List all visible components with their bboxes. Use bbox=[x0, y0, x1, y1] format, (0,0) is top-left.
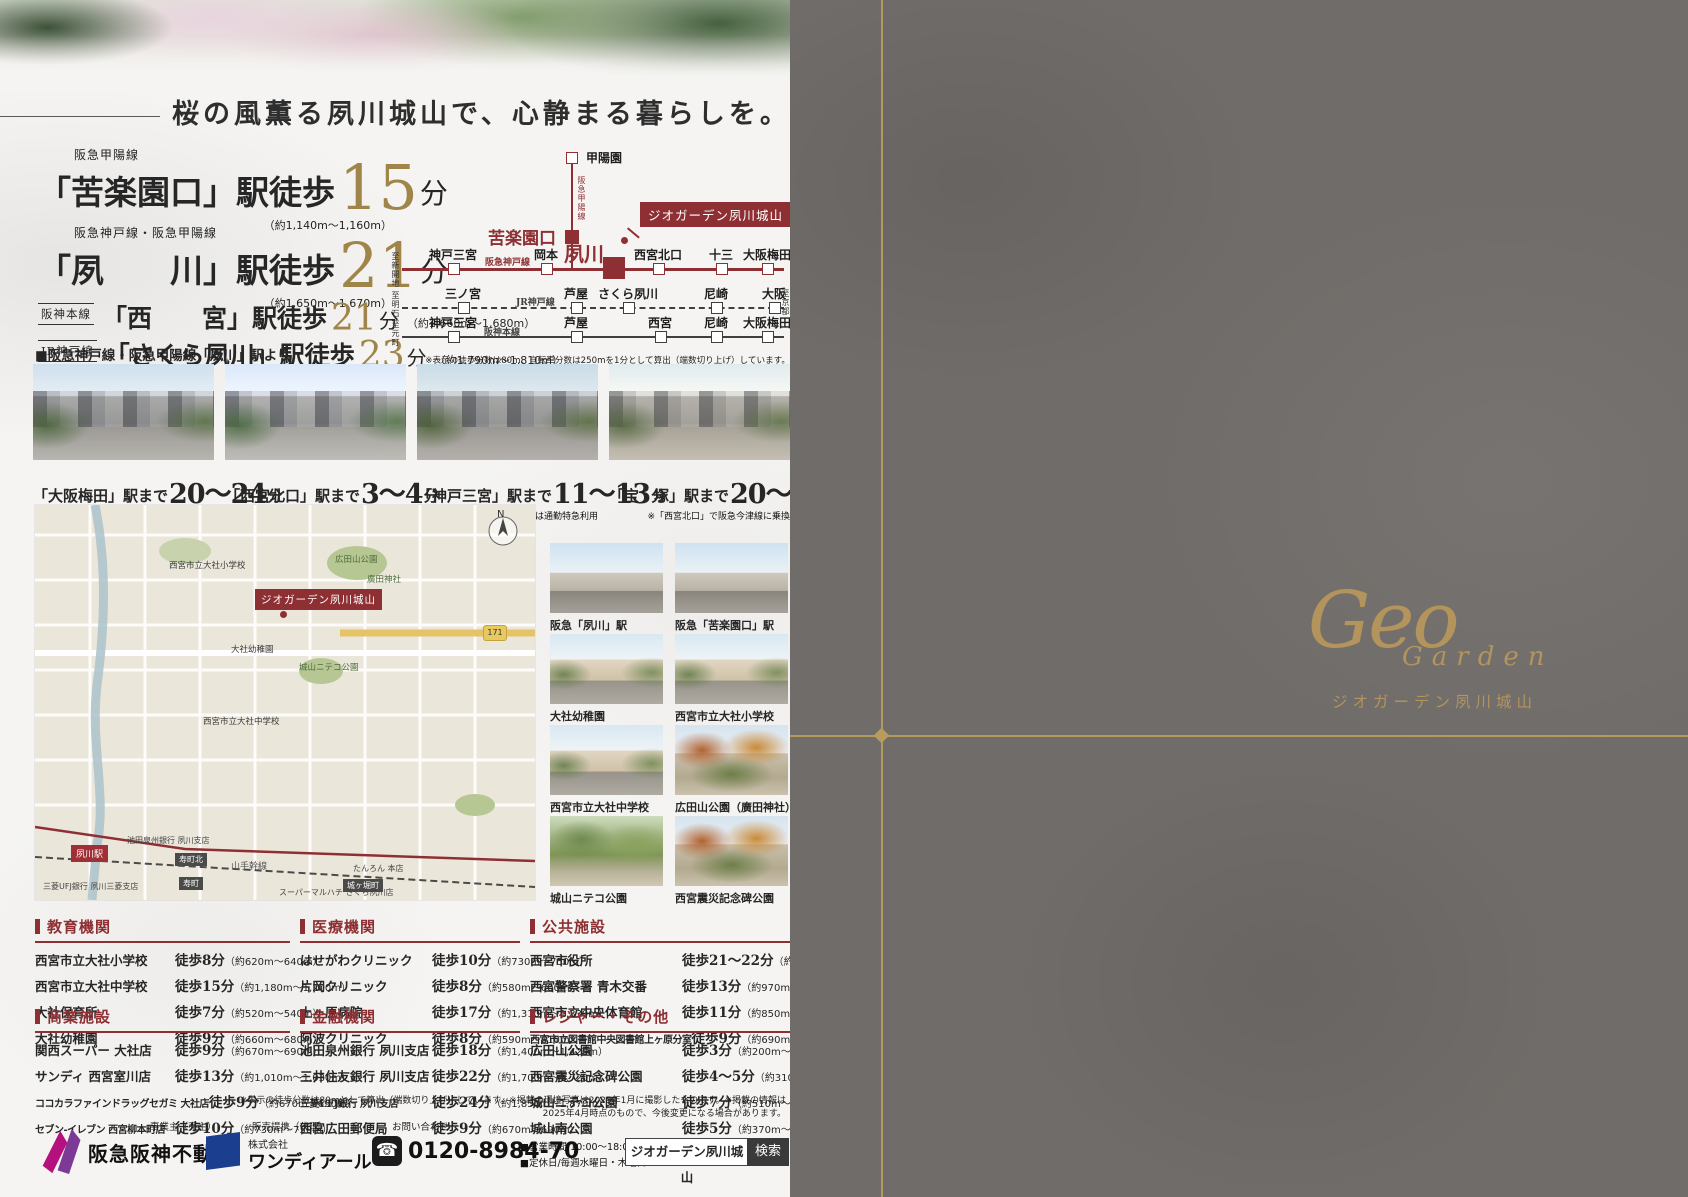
map-label-tiny: たんろん 本店 bbox=[353, 863, 404, 874]
facility-walk-time: 徒歩8分 bbox=[175, 949, 225, 969]
gold-vertical-rule bbox=[881, 0, 883, 1197]
station-name: 「苦楽園口」駅徒歩 bbox=[38, 166, 335, 214]
map-label-park: 広田山公園 bbox=[335, 553, 378, 565]
facility-photo-caption: 広田山公園（廣田神社） bbox=[675, 799, 788, 815]
facility-row: サンディ 西宮室川店徒歩13分（約1,010m〜1,030m） bbox=[35, 1065, 290, 1085]
station-label: 十三 bbox=[709, 246, 733, 263]
one-dr-logo-mark bbox=[206, 1132, 240, 1170]
property-location-dot bbox=[280, 611, 287, 618]
station-marker bbox=[541, 263, 553, 275]
cityscape-photo bbox=[33, 364, 214, 460]
facility-row: 三井住友銀行 夙川支店徒歩22分（約1,700m〜1,720m） bbox=[300, 1065, 520, 1085]
map-label-darkbox: 寿町 bbox=[179, 877, 203, 890]
photo-caption: 「神戸三宮」駅まで11〜13分 bbox=[417, 484, 598, 506]
facility-photo-item: 西宮市立大社小学校 bbox=[675, 634, 788, 724]
facility-photo bbox=[550, 634, 663, 704]
station-label: 芦屋 bbox=[564, 314, 588, 331]
rail-line-name: 阪神本線 bbox=[484, 325, 520, 338]
station-label: 甲陽園 bbox=[586, 149, 622, 166]
line-destination-left: 至新開地 bbox=[390, 252, 401, 288]
business-hours: ■営業時間/10:00〜18:00 bbox=[520, 1139, 634, 1153]
header-bar bbox=[35, 919, 40, 934]
station-marker bbox=[623, 302, 635, 314]
map-label-tiny2: 西宮市立大社中学校 bbox=[203, 715, 280, 727]
developer-label: 事業主（売主） bbox=[150, 1119, 217, 1133]
cityscape-photo bbox=[225, 364, 406, 460]
station-label: 西宮北口 bbox=[634, 246, 682, 263]
facility-photo-item: 広田山公園（廣田神社） bbox=[675, 725, 788, 815]
map-label-plain: 山手幹線 bbox=[231, 859, 267, 872]
flag-pointer bbox=[627, 227, 640, 238]
back-cover: Geo Garden ジオガーデン夙川城山 bbox=[790, 0, 1688, 1197]
photo-caption: 「宝 塚」駅まで20〜26分 bbox=[609, 484, 790, 506]
phone-icon: ☎ bbox=[372, 1136, 402, 1166]
station-marker bbox=[458, 302, 470, 314]
line-destination-left: 至元町 bbox=[390, 320, 401, 347]
facility-row: 西宮市立大社中学校徒歩15分（約1,180m〜1,200m） bbox=[35, 975, 290, 995]
facility-photo-item: 大社幼稚園 bbox=[550, 634, 663, 724]
rail-route-diagram: 至新開地阪急神戸線神戸三宮岡本西宮北口十三大阪梅田至明石至京都JR神戸線三ノ宮芦… bbox=[388, 140, 790, 368]
facility-table-title: 教育機関 bbox=[47, 916, 111, 937]
station-marker bbox=[769, 302, 781, 314]
facility-photo-item: 西宮震災記念碑公園 bbox=[675, 816, 788, 906]
station-name: 「夙 川」駅徒歩 bbox=[38, 244, 335, 292]
station-access-main: 「苦楽園口」駅徒歩15分 bbox=[38, 163, 392, 214]
facility-walk-time: 徒歩21〜22分 bbox=[682, 949, 774, 969]
station-photo-item: 「西宮北口」駅まで3〜4分 bbox=[225, 364, 406, 522]
facility-photo bbox=[550, 725, 663, 795]
station-name: 「西 宮」駅徒歩 bbox=[102, 299, 327, 335]
facility-walk-time: 徒歩13分 bbox=[175, 1065, 234, 1085]
facility-row: 広田山公園徒歩3分（約200m〜220m） bbox=[530, 1039, 790, 1059]
station-label: 尼崎 bbox=[704, 285, 728, 302]
rail-line-name: 阪急神戸線 bbox=[485, 255, 530, 268]
facility-table-title: 医療機関 bbox=[312, 916, 376, 937]
facility-name: 城山南公園 bbox=[530, 1118, 682, 1137]
station-photo-item: 「神戸三宮」駅まで11〜13分※特急または通勤特急利用 bbox=[417, 364, 598, 522]
search-keyword-box: ジオガーデン夙川城山 bbox=[625, 1138, 749, 1166]
contact-label: お問い合わせ bbox=[392, 1119, 449, 1133]
station-label: 神戸三宮 bbox=[429, 314, 477, 331]
facility-walk-time: 徒歩10分 bbox=[432, 949, 491, 969]
caption-note: ※「西宮北口」で阪急今津線に乗換 bbox=[609, 509, 790, 522]
facility-name: サンディ 西宮室川店 bbox=[35, 1066, 175, 1085]
facility-table-title: 公共施設 bbox=[542, 916, 606, 937]
facility-walk-time: 徒歩8分 bbox=[432, 975, 482, 995]
property-flag: ジオガーデン夙川城山 bbox=[640, 202, 791, 227]
map-label-tiny2: 西宮市立大社小学校 bbox=[169, 559, 246, 571]
logo-garden-text: Garden bbox=[1402, 642, 1553, 672]
area-map: N 171 ジオガーデン夙川城山夙川駅寿町北寿町城ヶ堀町山手幹線池田泉州銀行 夙… bbox=[35, 505, 535, 900]
header-bar bbox=[530, 1009, 535, 1024]
facility-photo-caption: 西宮市立大社中学校 bbox=[550, 799, 663, 815]
facility-photo bbox=[550, 816, 663, 886]
hankyu-hanshin-logo-mark bbox=[40, 1128, 84, 1174]
station-marker bbox=[711, 331, 723, 343]
facility-name: 池田泉州銀行 夙川支店 bbox=[300, 1040, 432, 1059]
facility-table-header: 教育機関 bbox=[35, 916, 290, 943]
hub-station-marker bbox=[603, 257, 625, 279]
facility-name: はせがわクリニック bbox=[300, 950, 432, 969]
station-photo-item: 「大阪梅田」駅まで20〜24分※特急または通勤特急利用 bbox=[33, 364, 214, 522]
facility-table-header: 公共施設 bbox=[530, 916, 790, 943]
station-label: さくら夙川 bbox=[598, 285, 658, 302]
map-label-tiny2: 大社幼稚園 bbox=[231, 643, 274, 655]
station-label: 神戸三宮 bbox=[429, 246, 477, 263]
facility-walk-time: 徒歩13分 bbox=[682, 975, 741, 995]
station-marker bbox=[655, 331, 667, 343]
line-destination-left: 至明石 bbox=[390, 291, 401, 318]
branch-line-name: 阪急甲陽線 bbox=[576, 176, 587, 221]
rail-line-label: 阪神本線 bbox=[38, 303, 94, 325]
facility-photo bbox=[675, 634, 788, 704]
facility-photo-item: 城山ニテコ公園 bbox=[550, 816, 663, 906]
map-label-flag: ジオガーデン夙川城山 bbox=[255, 589, 382, 610]
facility-row: 西宮震災記念碑公園徒歩4〜5分（約310m〜330m） bbox=[530, 1065, 790, 1085]
station-marker bbox=[566, 152, 578, 164]
station-label: 尼崎 bbox=[704, 314, 728, 331]
facility-name: 西宮震災記念碑公園 bbox=[530, 1066, 682, 1085]
facility-photo-item: 阪急「夙川」駅 bbox=[550, 543, 663, 633]
gold-diamond bbox=[874, 728, 890, 744]
facility-photo-caption: 西宮震災記念碑公園 bbox=[675, 890, 788, 906]
map-label-tiny: 三菱UFJ銀行 夙川三菱支店 bbox=[43, 881, 138, 892]
facility-name: 西宮市立大社小学校 bbox=[35, 950, 175, 969]
station-marker bbox=[716, 263, 728, 275]
station-label: 大阪梅田 bbox=[743, 246, 791, 263]
header-bar bbox=[530, 919, 535, 934]
agency-label: 販売提携（代理） bbox=[252, 1119, 328, 1133]
facility-name: 西宮市立大社中学校 bbox=[35, 976, 175, 995]
facility-photo-caption: 阪急「苦楽園口」駅 bbox=[675, 617, 788, 633]
gold-horizontal-rule bbox=[790, 735, 1688, 737]
map-base bbox=[35, 505, 535, 900]
station-marker bbox=[711, 302, 723, 314]
map-label-park: 廣田神社 bbox=[367, 573, 401, 585]
facility-row: 片岡クリニック徒歩8分（約580m〜600m） bbox=[300, 975, 520, 995]
caption-minutes: 3〜4 bbox=[361, 484, 423, 506]
facility-row: はせがわクリニック徒歩10分（約730m〜750m） bbox=[300, 949, 520, 969]
facility-row: 池田泉州銀行 夙川支店徒歩18分（約1,400m〜1,420m） bbox=[300, 1039, 520, 1059]
facility-name: 関西スーパー 大社店 bbox=[35, 1040, 175, 1059]
facility-photo-item: 西宮市立大社中学校 bbox=[550, 725, 663, 815]
facility-row: 西宮警察署 青木交番徒歩13分（約970m〜990m） bbox=[530, 975, 790, 995]
headline-rule bbox=[0, 116, 160, 117]
map-label-tiny: 池田泉州銀行 夙川支店 bbox=[127, 835, 210, 846]
facility-table-header: 医療機関 bbox=[300, 916, 520, 943]
map-label-darkbox: 寿町北 bbox=[175, 853, 207, 866]
photo-caption: 「大阪梅田」駅まで20〜24分 bbox=[33, 484, 214, 506]
agency-name: ワンディアール bbox=[248, 1148, 372, 1174]
facility-photo bbox=[675, 725, 788, 795]
station-label: 大阪 bbox=[762, 285, 786, 302]
station-access-main: 「夙 川」駅徒歩21分 bbox=[38, 241, 392, 292]
station-marker bbox=[571, 302, 583, 314]
facility-row: 西宮市立大社小学校徒歩8分（約620m〜640m） bbox=[35, 949, 290, 969]
facility-photo bbox=[675, 816, 788, 886]
station-photo-row: 「大阪梅田」駅まで20〜24分※特急または通勤特急利用「西宮北口」駅まで3〜4分… bbox=[33, 364, 790, 522]
facility-walk-time: 徒歩5分 bbox=[682, 1117, 732, 1137]
station-label: 大阪梅田 bbox=[743, 314, 791, 331]
facility-walk-time: 徒歩4〜5分 bbox=[682, 1065, 755, 1085]
facility-walk-time: 徒歩15分 bbox=[175, 975, 234, 995]
station-label-kurakuenguchi: 苦楽園口 bbox=[488, 224, 556, 249]
facility-name: ココカラファインドラッグセガミ 大社店 bbox=[35, 1095, 209, 1110]
facility-photo-caption: 阪急「夙川」駅 bbox=[550, 617, 663, 633]
route-171-badge: 171 bbox=[483, 625, 507, 641]
facility-row: 西宮市役所徒歩21〜22分（約1,670m〜1,690m） bbox=[530, 949, 790, 969]
compass-north-label: N bbox=[497, 509, 504, 520]
facility-row: 城山南公園徒歩5分（約370m〜390m） bbox=[530, 1117, 790, 1137]
footnote: ※表示の徒歩分数は80mとして算出（端数切り上げ）しています。※掲載の環境写真は… bbox=[230, 1093, 786, 1119]
facility-table-title: 金融機関 bbox=[312, 1006, 376, 1027]
header-bar bbox=[300, 919, 305, 934]
cityscape-photo bbox=[417, 364, 598, 460]
facility-photo-caption: 大社幼稚園 bbox=[550, 708, 663, 724]
facility-photo bbox=[550, 543, 663, 613]
caption-station: 「宝 塚」駅まで bbox=[609, 485, 729, 506]
facility-row: 関西スーパー 大社店徒歩9分（約670m〜690m） bbox=[35, 1039, 290, 1059]
station-access-item: 阪神本線「西 宮」駅徒歩21分（約1,660m〜1,680m） bbox=[38, 299, 392, 335]
facility-name: 三井住友銀行 夙川支店 bbox=[300, 1066, 432, 1085]
header-bar bbox=[35, 1009, 40, 1024]
header-bar bbox=[300, 1009, 305, 1024]
brochure-spread: 桜の風薫る夙川城山で、心静まる暮らしを。 阪急甲陽線「苦楽園口」駅徒歩15分（約… bbox=[0, 0, 1688, 1197]
facility-photo bbox=[675, 543, 788, 613]
facility-name: 広田山公園 bbox=[530, 1040, 682, 1059]
facility-photo-item: 阪急「苦楽園口」駅 bbox=[675, 543, 788, 633]
map-label-park: 城山ニテコ公園 bbox=[299, 661, 359, 673]
facility-table-title: レジャー・その他 bbox=[542, 1006, 669, 1027]
page-title: 桜の風薫る夙川城山で、心静まる暮らしを。 bbox=[172, 92, 791, 131]
left-page: 桜の風薫る夙川城山で、心静まる暮らしを。 阪急甲陽線「苦楽園口」駅徒歩15分（約… bbox=[0, 0, 790, 1197]
station-label: 西宮 bbox=[648, 314, 672, 331]
station-access-main: 阪神本線「西 宮」駅徒歩21分（約1,660m〜1,680m） bbox=[38, 299, 392, 335]
facility-walk-time: 徒歩3分 bbox=[682, 1039, 732, 1059]
logo-japanese-text: ジオガーデン夙川城山 bbox=[1332, 690, 1537, 712]
station-marker bbox=[762, 331, 774, 343]
facility-name: 片岡クリニック bbox=[300, 976, 432, 995]
caption-station: 「大阪梅田」駅まで bbox=[33, 485, 168, 506]
facility-name: 西宮警察署 青木交番 bbox=[530, 976, 682, 995]
search-button: 検索 bbox=[747, 1138, 789, 1166]
station-photo-item: 「宝 塚」駅まで20〜26分※「西宮北口」で阪急今津線に乗換 bbox=[609, 364, 790, 522]
map-label-tiny: スーパーマルハチ さくら夙川店 bbox=[279, 887, 393, 898]
caption-station: 「神戸三宮」駅まで bbox=[417, 485, 552, 506]
property-dot bbox=[621, 237, 628, 244]
facility-walk-time: 徒歩18分 bbox=[432, 1039, 491, 1059]
facility-walk-time: 徒歩22分 bbox=[432, 1065, 491, 1085]
station-marker bbox=[653, 263, 665, 275]
walk-minutes: 21 bbox=[331, 304, 377, 335]
caption-station: 「西宮北口」駅まで bbox=[225, 485, 360, 506]
station-label: 芦屋 bbox=[564, 285, 588, 302]
facility-table-header: レジャー・その他 bbox=[530, 1006, 790, 1033]
geo-garden-logo: Geo Garden ジオガーデン夙川城山 bbox=[1308, 586, 1618, 656]
facility-name: 西宮市役所 bbox=[530, 950, 682, 969]
facility-table-header: 金融機関 bbox=[300, 1006, 520, 1033]
facility-photo-caption: 西宮市立大社小学校 bbox=[675, 708, 788, 724]
rail-line-name: JR神戸線 bbox=[516, 295, 555, 308]
station-marker bbox=[571, 331, 583, 343]
map-label-stationbox: 夙川駅 bbox=[71, 845, 108, 862]
station-marker bbox=[762, 263, 774, 275]
facility-table-header: 商業施設 bbox=[35, 1006, 290, 1033]
station-marker bbox=[448, 331, 460, 343]
station-marker bbox=[448, 263, 460, 275]
photo-caption: 「西宮北口」駅まで3〜4分 bbox=[225, 484, 406, 506]
cherry-blossom-photo bbox=[0, 0, 790, 78]
facility-photo-caption: 城山ニテコ公園 bbox=[550, 890, 663, 906]
cityscape-photo bbox=[609, 364, 790, 460]
facility-table-title: 商業施設 bbox=[47, 1006, 111, 1027]
station-label-shukugawa: 夙川 bbox=[564, 238, 604, 267]
station-label: 三ノ宮 bbox=[445, 285, 481, 302]
facility-walk-time: 徒歩9分 bbox=[175, 1039, 225, 1059]
station-photos-label: ■阪急神戸線・阪急甲陽線「夙川」駅より bbox=[35, 344, 291, 364]
station-access-item: 阪急甲陽線「苦楽園口」駅徒歩15分（約1,140m〜1,160m） bbox=[38, 146, 392, 233]
